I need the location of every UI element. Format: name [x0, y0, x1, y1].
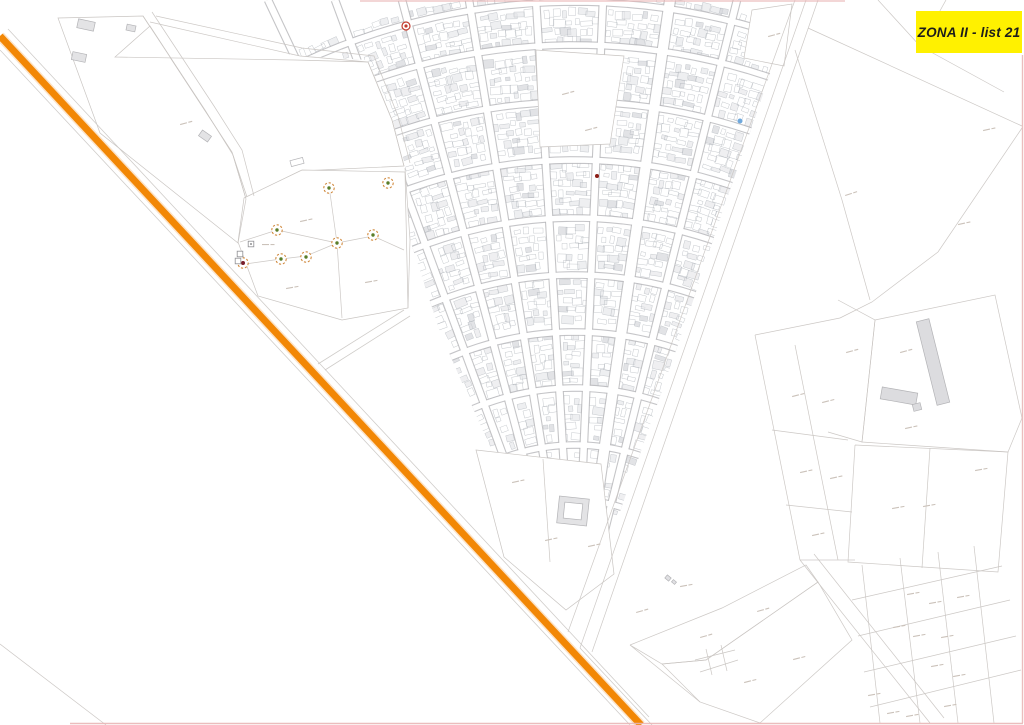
building: [471, 154, 477, 159]
building: [523, 409, 531, 418]
building: [592, 406, 605, 416]
building: [664, 367, 671, 373]
label-dash: [953, 675, 960, 677]
label-dash: [801, 656, 805, 658]
label-dash: [949, 635, 953, 637]
building: [364, 42, 373, 48]
building: [667, 81, 673, 89]
label-dash: [271, 244, 275, 245]
building: [558, 290, 563, 295]
building: [482, 356, 487, 361]
building: [592, 353, 598, 358]
building: [553, 19, 565, 28]
building: [651, 15, 659, 22]
building: [702, 164, 711, 170]
building: [533, 309, 539, 316]
parcel-label: [975, 468, 988, 471]
label-dash: [708, 634, 712, 636]
building: [623, 92, 631, 101]
building: [523, 66, 535, 73]
building: [448, 151, 456, 157]
label-dash: [792, 394, 799, 397]
building: [640, 252, 645, 257]
building: [642, 113, 647, 119]
building: [534, 299, 545, 305]
building: [680, 92, 685, 97]
road-edge-line: [318, 310, 404, 364]
parcel-label: [744, 679, 756, 683]
building: [581, 21, 593, 27]
building: [653, 204, 661, 211]
building: [564, 395, 570, 404]
parcel-line: [706, 649, 712, 675]
building: [481, 206, 489, 212]
building: [389, 44, 396, 53]
building: [639, 315, 647, 321]
building: [417, 28, 424, 35]
parcel-label: [793, 656, 805, 660]
label-dash: [961, 674, 965, 676]
structure-building: [665, 575, 671, 581]
building: [493, 409, 500, 418]
parcel-label: [906, 714, 919, 717]
building: [560, 170, 566, 178]
building: [416, 198, 422, 206]
building: [688, 132, 699, 137]
building: [575, 224, 584, 231]
building: [650, 271, 662, 277]
building: [559, 279, 570, 285]
building: [525, 77, 530, 81]
parcel-line: [974, 546, 994, 723]
building: [419, 148, 429, 155]
building: [581, 29, 587, 35]
label-dash: [846, 350, 853, 353]
building: [526, 27, 532, 35]
building: [682, 101, 694, 108]
building: [640, 268, 650, 278]
parcel-central-block: [536, 50, 624, 147]
building: [515, 168, 526, 173]
building: [578, 254, 583, 259]
label-dash: [830, 477, 837, 480]
parcel-label: [892, 506, 905, 509]
building: [675, 157, 686, 163]
building: [558, 254, 566, 262]
label-dash: [744, 680, 751, 683]
building: [579, 199, 591, 208]
building: [640, 415, 646, 423]
building: [503, 322, 511, 330]
building: [680, 306, 688, 314]
parcel-label: [944, 704, 957, 707]
building: [724, 83, 733, 92]
building: [446, 76, 452, 85]
building: [555, 28, 560, 34]
parcel-label: [800, 469, 812, 473]
building: [467, 185, 473, 191]
building: [415, 139, 423, 147]
building: [387, 56, 393, 64]
building: [405, 232, 415, 238]
building: [559, 190, 564, 198]
building: [668, 118, 674, 123]
building: [570, 201, 580, 206]
building: [661, 124, 670, 133]
building: [617, 400, 624, 405]
building: [391, 17, 400, 24]
building: [701, 68, 709, 75]
building: [440, 51, 446, 56]
building: [527, 254, 536, 259]
building: [692, 245, 700, 252]
building: [524, 427, 535, 436]
building: [505, 77, 510, 81]
parcel-line: [828, 300, 875, 442]
building: [642, 232, 650, 239]
building: [519, 237, 529, 244]
building: [605, 30, 610, 37]
label-dash: [914, 714, 918, 716]
building: [522, 291, 528, 300]
building: [517, 183, 524, 190]
building: [447, 216, 456, 222]
label-dash: [905, 427, 912, 430]
building: [425, 215, 433, 223]
building: [652, 360, 665, 370]
building: [573, 280, 580, 285]
building: [453, 21, 460, 27]
building: [612, 227, 621, 234]
building: [633, 14, 643, 20]
building: [575, 316, 582, 321]
parcel-line: [721, 645, 727, 671]
parcel-label: [700, 634, 712, 639]
building: [453, 278, 464, 286]
building: [601, 165, 606, 171]
building: [549, 424, 554, 432]
building: [562, 316, 574, 325]
building: [450, 251, 460, 260]
building: [737, 97, 746, 107]
parcel-label: [887, 711, 900, 714]
building: [610, 236, 615, 244]
building: [437, 321, 447, 330]
building: [562, 371, 573, 377]
building: [476, 126, 483, 131]
blue-point-marker: [738, 119, 743, 124]
building: [608, 319, 616, 324]
label-dash: [853, 191, 857, 193]
building: [473, 311, 480, 318]
building: [580, 182, 586, 188]
building: [656, 252, 668, 261]
building: [488, 182, 495, 188]
label-dash: [644, 609, 648, 611]
structure-building: [916, 319, 949, 406]
building: [598, 227, 604, 234]
building: [623, 130, 633, 138]
building: [717, 91, 727, 98]
cadastral-map-canvas: [0, 0, 1024, 725]
building: [528, 146, 532, 153]
building: [671, 321, 681, 328]
building: [504, 313, 510, 322]
building: [456, 183, 468, 192]
building: [636, 124, 641, 130]
label-dash: [907, 593, 914, 595]
building: [607, 255, 619, 263]
square-marker-dot: [250, 243, 252, 245]
building: [481, 238, 488, 244]
building: [721, 102, 730, 109]
building: [627, 376, 635, 381]
building: [633, 146, 639, 153]
parcel-label: [636, 609, 648, 614]
building: [534, 345, 540, 353]
building: [597, 246, 604, 253]
building: [479, 375, 490, 384]
building: [444, 207, 451, 216]
label-dash: [830, 399, 834, 401]
building: [597, 319, 606, 325]
building: [608, 10, 613, 15]
building: [686, 3, 691, 9]
building: [638, 434, 650, 441]
building: [574, 398, 579, 404]
building: [515, 128, 522, 135]
building: [416, 7, 427, 17]
building: [606, 183, 618, 190]
building: [708, 144, 720, 153]
building: [659, 173, 668, 179]
building: [381, 47, 388, 56]
building: [661, 188, 669, 197]
building: [729, 94, 735, 99]
parcel-label: [958, 221, 970, 225]
building: [444, 85, 450, 94]
label-dash: [991, 127, 995, 129]
building: [368, 52, 379, 62]
building: [575, 19, 579, 25]
building: [567, 29, 576, 37]
parcel-label: [905, 425, 917, 429]
building: [526, 264, 537, 272]
building: [666, 144, 671, 150]
building: [650, 34, 659, 38]
building: [593, 436, 599, 441]
building: [539, 252, 544, 259]
building: [553, 9, 560, 17]
parcel-label: [983, 127, 995, 131]
building: [566, 227, 576, 234]
parcel-label: [845, 191, 857, 196]
building: [531, 174, 537, 179]
building: [528, 301, 537, 310]
structure-building: [672, 580, 677, 585]
building: [450, 41, 462, 48]
building: [623, 202, 635, 210]
building: [707, 154, 717, 161]
building: [671, 180, 681, 189]
building: [385, 92, 392, 100]
building: [408, 145, 415, 152]
parcel-label: [830, 475, 842, 479]
building: [661, 208, 668, 212]
building: [737, 79, 745, 88]
building: [658, 152, 667, 158]
building: [640, 31, 647, 40]
building: [512, 201, 519, 209]
building: [711, 42, 719, 50]
label-dash: [931, 504, 935, 506]
building: [449, 68, 458, 74]
label-dash: [966, 221, 970, 223]
building: [698, 189, 710, 199]
label-dash: [822, 400, 829, 403]
building: [668, 190, 678, 196]
building: [496, 114, 503, 120]
building: [611, 37, 621, 43]
label-dash: [808, 469, 812, 471]
building: [687, 94, 695, 101]
parcel-line: [870, 670, 1021, 707]
building: [540, 344, 552, 350]
building: [536, 372, 549, 381]
label-dash: [900, 350, 907, 353]
building: [479, 135, 485, 142]
building: [518, 84, 529, 91]
building: [440, 122, 453, 132]
building: [622, 11, 630, 19]
building: [641, 303, 652, 310]
building: [543, 311, 547, 316]
building: [650, 370, 657, 379]
building: [730, 103, 739, 112]
label-dash: [983, 468, 987, 470]
building: [399, 98, 408, 107]
building: [603, 353, 611, 357]
building: [528, 136, 539, 143]
building: [713, 205, 719, 210]
building: [528, 86, 534, 90]
building: [488, 12, 498, 21]
building: [610, 454, 617, 462]
building: [502, 25, 512, 30]
structure-building: [880, 387, 918, 405]
label-dash: [820, 532, 824, 534]
building: [566, 21, 572, 25]
building: [617, 182, 622, 190]
building: [514, 12, 524, 17]
building: [474, 209, 479, 214]
building: [488, 306, 500, 314]
building: [706, 216, 713, 224]
label-dash: [895, 711, 899, 713]
square-marker: [237, 251, 243, 257]
building: [519, 255, 530, 261]
building: [470, 82, 480, 87]
building: [500, 408, 507, 415]
building: [456, 260, 465, 266]
building: [457, 28, 467, 35]
building: [643, 11, 648, 18]
building: [500, 425, 509, 433]
building: [468, 321, 476, 330]
building: [597, 345, 605, 353]
building: [614, 429, 622, 437]
building: [578, 243, 589, 249]
geodetic-marker-dot: [275, 228, 278, 231]
building: [486, 363, 493, 371]
building: [705, 42, 712, 47]
building: [452, 140, 463, 147]
building: [672, 147, 684, 153]
building: [465, 71, 474, 80]
building: [468, 199, 478, 207]
parcel-line: [772, 430, 848, 440]
building: [416, 262, 426, 272]
building: [567, 173, 574, 181]
building: [525, 437, 537, 446]
parcel-label: [262, 244, 275, 245]
parcel-line: [630, 645, 700, 702]
building: [501, 305, 511, 311]
building: [434, 77, 447, 87]
building: [423, 34, 431, 43]
building: [432, 68, 442, 77]
building: [517, 265, 525, 273]
building: [541, 27, 552, 32]
building: [517, 403, 527, 410]
building: [515, 73, 522, 82]
building: [439, 32, 448, 41]
building: [391, 35, 397, 42]
parcel-label: [931, 664, 944, 667]
building: [504, 140, 512, 148]
building: [491, 242, 500, 250]
building: [397, 78, 405, 87]
building: [682, 251, 687, 256]
building: [520, 172, 531, 180]
label-dash: [906, 715, 913, 717]
building: [697, 255, 705, 261]
building: [498, 151, 505, 156]
building: [572, 298, 582, 305]
building: [493, 260, 505, 266]
label-dash: [636, 610, 643, 613]
building: [677, 71, 689, 81]
parcel-line: [662, 582, 852, 723]
building: [514, 177, 522, 182]
label-dash: [262, 244, 269, 245]
label-dash: [757, 609, 764, 612]
building: [459, 101, 469, 107]
building: [605, 147, 611, 153]
building: [524, 129, 531, 136]
parcel-label: [822, 399, 834, 403]
building: [711, 167, 720, 173]
building: [675, 19, 685, 25]
building: [667, 210, 679, 219]
building: [528, 120, 539, 124]
building: [629, 123, 634, 128]
parcel-right-notch: [744, 4, 792, 66]
building: [504, 359, 512, 366]
building: [680, 128, 689, 137]
building: [372, 21, 381, 28]
building: [687, 141, 694, 148]
